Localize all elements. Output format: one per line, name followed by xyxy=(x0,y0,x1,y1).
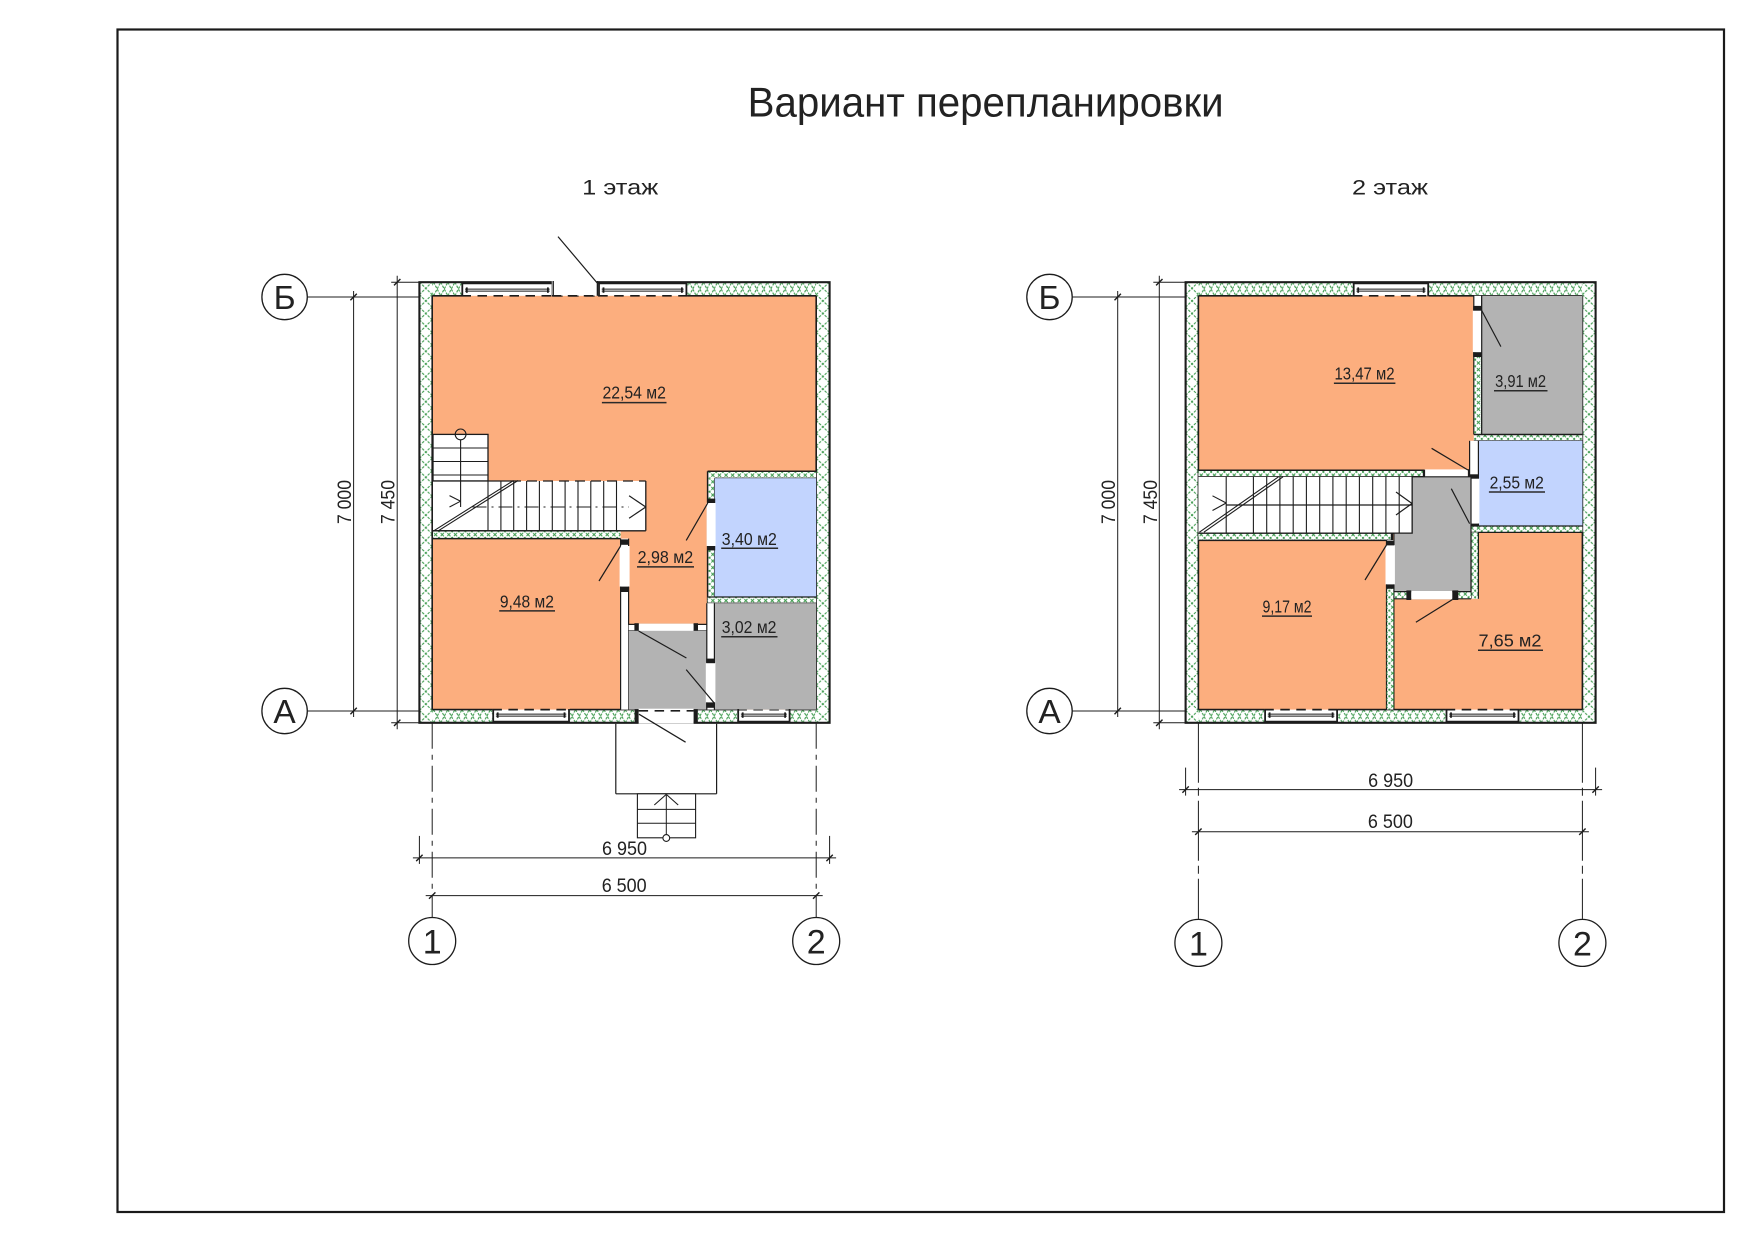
svg-text:13,47 м2: 13,47 м2 xyxy=(1335,364,1395,384)
svg-text:6 950: 6 950 xyxy=(1368,770,1413,792)
svg-text:1: 1 xyxy=(423,924,442,962)
svg-text:2: 2 xyxy=(807,924,826,962)
svg-text:2 этаж: 2 этаж xyxy=(1352,177,1428,200)
svg-text:7 450: 7 450 xyxy=(1140,480,1162,524)
svg-text:2,98 м2: 2,98 м2 xyxy=(638,547,694,567)
svg-text:9,17 м2: 9,17 м2 xyxy=(1263,597,1312,617)
svg-text:1: 1 xyxy=(1189,925,1208,963)
svg-text:2,55 м2: 2,55 м2 xyxy=(1490,472,1544,492)
svg-text:7 000: 7 000 xyxy=(334,480,356,524)
svg-text:А: А xyxy=(1038,694,1061,731)
svg-text:Б: Б xyxy=(1039,280,1061,317)
svg-text:2: 2 xyxy=(1573,925,1592,963)
svg-text:9,48 м2: 9,48 м2 xyxy=(500,592,554,612)
svg-text:А: А xyxy=(273,694,296,731)
svg-text:3,40 м2: 3,40 м2 xyxy=(722,529,777,549)
svg-text:7,65 м2: 7,65 м2 xyxy=(1479,631,1542,651)
svg-text:6 500: 6 500 xyxy=(1368,811,1413,833)
svg-text:6 500: 6 500 xyxy=(602,875,647,897)
svg-text:7 450: 7 450 xyxy=(378,480,400,524)
svg-text:6 950: 6 950 xyxy=(602,838,647,860)
svg-text:3,02 м2: 3,02 м2 xyxy=(722,617,777,637)
svg-text:22,54 м2: 22,54 м2 xyxy=(602,383,666,403)
svg-text:1 этаж: 1 этаж xyxy=(582,177,658,200)
svg-text:Вариант перепланировки: Вариант перепланировки xyxy=(748,79,1224,126)
svg-text:7 000: 7 000 xyxy=(1098,480,1120,524)
svg-text:3,91 м2: 3,91 м2 xyxy=(1495,371,1546,391)
svg-text:Б: Б xyxy=(274,280,296,317)
